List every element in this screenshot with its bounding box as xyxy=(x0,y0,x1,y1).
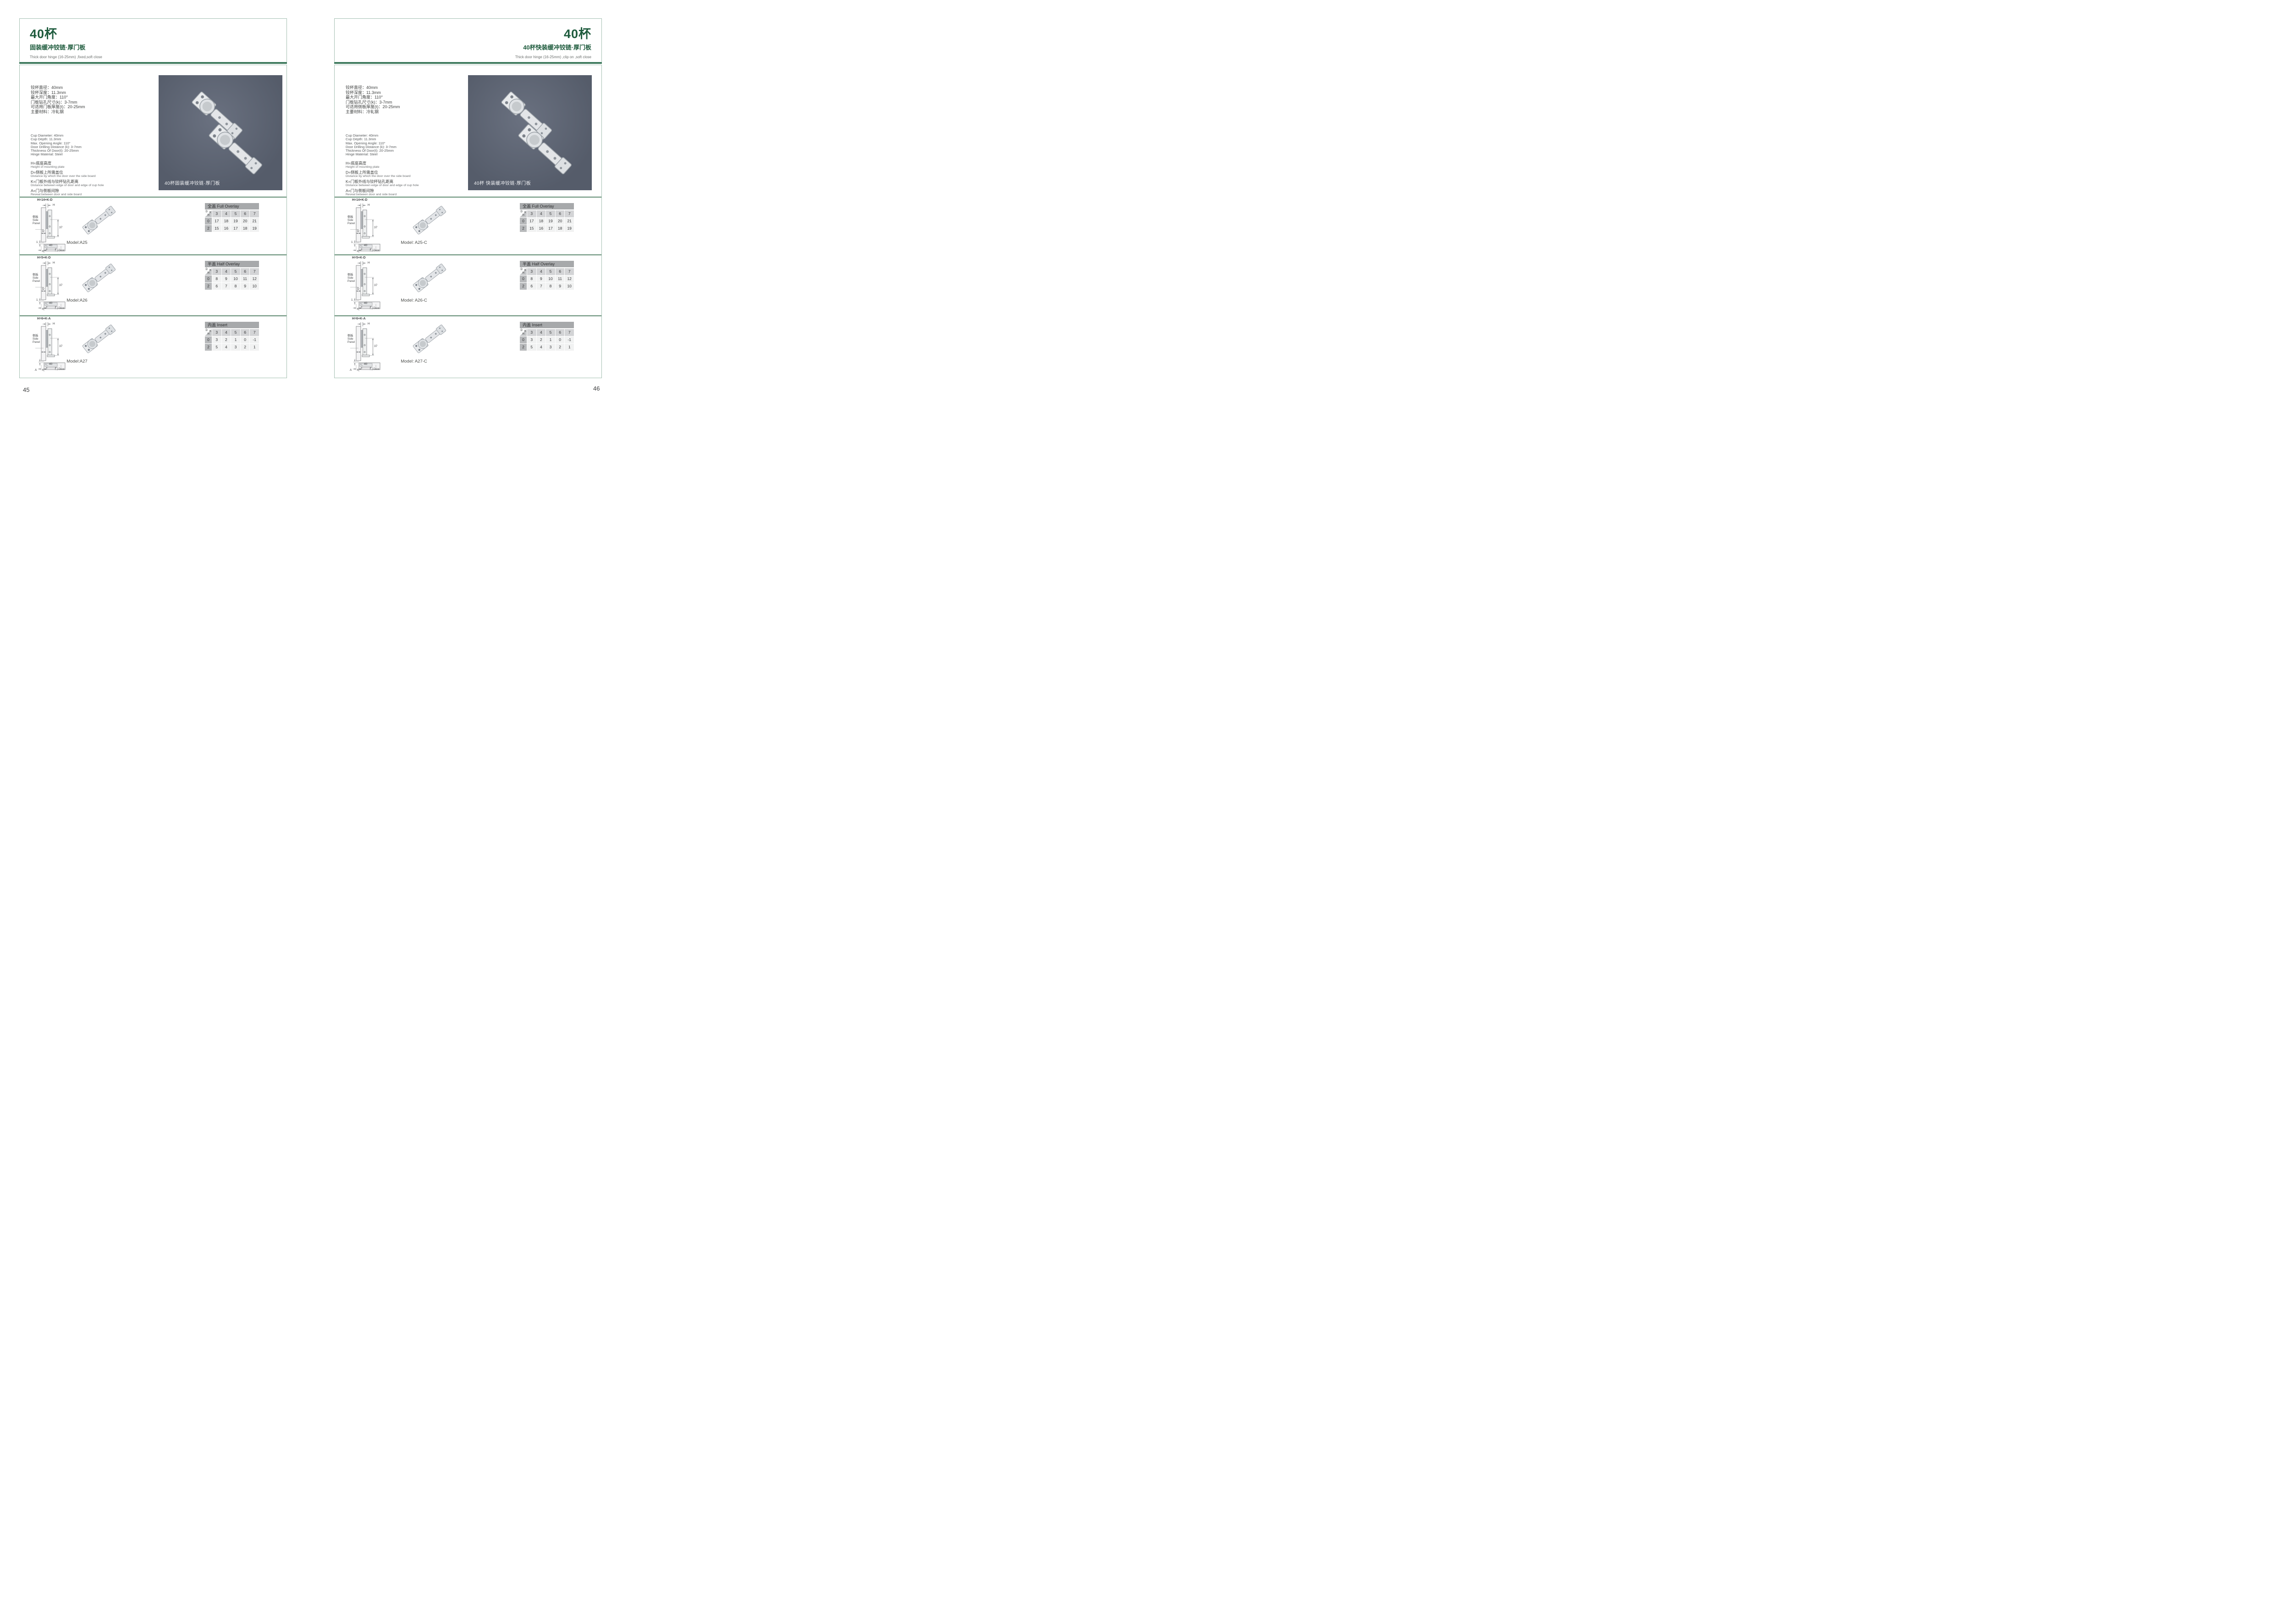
table-cell: 19 xyxy=(546,218,555,225)
photo-caption: 40杯 快装缓冲铰链·厚门板 xyxy=(474,179,531,186)
diagram-formula: H=5+K-D xyxy=(352,256,366,259)
side-panel-en: Panel xyxy=(33,341,40,344)
table-col-header: 4 xyxy=(537,329,546,336)
table-row-header: 0 xyxy=(205,218,212,225)
side-panel-en: Side xyxy=(347,219,355,222)
product-row: H=14+K-D H 侧板 Side Panel D 37 1 40 K 门 D… xyxy=(335,198,601,254)
page-body: 铰杯直径：40mm 铰杯深度：11.3mm 最大开门角度：110° 门板钻孔尺寸… xyxy=(19,65,287,378)
definition-cn: H=底座高度 xyxy=(346,161,419,165)
corner-label-d: D xyxy=(206,268,208,271)
diagram-label-k: K xyxy=(357,250,359,253)
side-panel-cn: 侧板 xyxy=(347,334,355,337)
table-cell: -1 xyxy=(565,336,574,343)
table-cell: 17 xyxy=(546,225,555,232)
table-cell: 0 xyxy=(241,336,250,343)
product-row: H=6+K-A H 侧板 Side Panel 37 40 K A 门 Door xyxy=(335,316,601,378)
corner-label-d: D xyxy=(206,329,208,332)
definition-cn: K=门板外线与铰杯钻孔距离 xyxy=(31,179,104,184)
table-row-header: 0 xyxy=(205,275,212,282)
page-header: 40杯 40杯快装缓冲铰链·厚门板 Thick door hinge (16-2… xyxy=(334,18,602,62)
table-corner-cell: D K H xyxy=(520,210,527,217)
model-label: Model:A26 xyxy=(47,298,107,303)
model-label: Model: A26-C xyxy=(384,298,444,303)
definition-en: Distance by which the door over the side… xyxy=(346,175,419,178)
spec-item: 主要材料：冷轧钢 xyxy=(31,110,85,115)
corner-label-d: D xyxy=(521,210,523,214)
diagram-label-a: A xyxy=(35,369,37,372)
definition-cn: H=底座高度 xyxy=(31,161,104,165)
table-cell: 1 xyxy=(565,344,574,351)
diagram-dim-37: 37 xyxy=(374,284,377,287)
diagram-label-d: D xyxy=(42,287,44,291)
table-cell: 2 xyxy=(241,344,250,351)
side-panel-cn: 侧板 xyxy=(33,215,40,219)
table-row-header: 2 xyxy=(520,283,527,290)
table-col-header: 4 xyxy=(222,210,231,217)
table-row-header: 0 xyxy=(520,218,527,225)
diagram-label-door: 门 Door xyxy=(370,367,380,371)
corner-label-k: K xyxy=(524,330,526,333)
table-title: 全盖 Full Overlay xyxy=(205,203,259,209)
table-cell: 9 xyxy=(222,275,231,282)
table-col-header: 7 xyxy=(250,329,259,336)
hinge-photo-art xyxy=(159,75,282,190)
table-col-header: 7 xyxy=(250,268,259,275)
table-cell: 8 xyxy=(231,283,240,290)
table-cell: 16 xyxy=(537,225,546,232)
table-grid: D K H 3 4 5 6 7 0 3 2 1 0 - xyxy=(520,329,574,351)
catalog-page: 40杯 40杯快装缓冲铰链·厚门板 Thick door hinge (16-2… xyxy=(334,18,602,378)
table-col-header: 6 xyxy=(241,329,250,336)
table-row-header: 0 xyxy=(520,275,527,282)
table-cell: 5 xyxy=(212,344,221,351)
diagram-dim-1: 1 xyxy=(351,241,353,244)
diagram-label-k: K xyxy=(42,308,44,311)
table-row-header: 2 xyxy=(520,225,527,232)
table-cell: 3 xyxy=(212,336,221,343)
diagram-label-k: K xyxy=(42,369,44,372)
table-cell: 4 xyxy=(537,344,546,351)
catalog-spread: 45 46 40杯 固装缓冲铰链·厚门板 Thick door hinge (1… xyxy=(0,0,623,406)
diagram-formula: H=6+K-A xyxy=(37,317,51,320)
diagram-label-k: K xyxy=(42,250,44,253)
table-col-header: 3 xyxy=(527,210,536,217)
diagram-formula: H=6+K-A xyxy=(352,317,366,320)
corner-label-h: H xyxy=(523,214,524,217)
diagram-formula: H=14+K-D xyxy=(352,198,367,202)
page-header: 40杯 固装缓冲铰链·厚门板 Thick door hinge (16-25mm… xyxy=(19,18,287,62)
side-panel-en: Panel xyxy=(33,222,40,225)
diagram-label-side-panel: 侧板 Side Panel xyxy=(33,334,40,344)
side-panel-en: Side xyxy=(33,276,40,280)
table-col-header: 3 xyxy=(527,329,536,336)
diagram-dim-1: 1 xyxy=(36,298,38,302)
definition-cn: A=门与侧板间隙 xyxy=(31,188,104,193)
definition-en: Height of mounting plate xyxy=(31,165,104,169)
table-grid: D K H 3 4 5 6 7 0 8 9 10 11 xyxy=(205,268,259,290)
definition-cn: D=侧板上所需盖位 xyxy=(31,170,104,175)
table-col-header: 6 xyxy=(241,268,250,275)
page-body: 铰杯直径：40mm 铰杯深度：11.3mm 最大开门角度：110° 门板钻孔尺寸… xyxy=(334,65,602,378)
corner-label-h: H xyxy=(523,333,524,336)
table-cell: 1 xyxy=(231,336,240,343)
hinge-product-image xyxy=(74,199,124,241)
hinge-product-image xyxy=(404,199,455,241)
diagram-label-k: K xyxy=(357,308,359,311)
spec-item: 主要材料：冷轧钢 xyxy=(346,110,400,115)
spec-list-cn: 铰杯直径：40mm 铰杯深度：11.3mm 最大开门角度：110° 门板钻孔尺寸… xyxy=(31,85,85,114)
diagram-label-h: H xyxy=(368,322,370,325)
table-title: 半盖 Half Overlay xyxy=(520,261,574,267)
diagram-label-door: 门 Door xyxy=(55,306,65,310)
table-grid: D K H 3 4 5 6 7 0 8 9 10 11 xyxy=(520,268,574,290)
page-number: 46 xyxy=(593,385,600,392)
overlay-table: 半盖 Half Overlay D K H 3 4 5 6 7 0 8 xyxy=(205,261,259,290)
corner-label-k: K xyxy=(209,330,211,333)
table-col-header: 3 xyxy=(212,329,221,336)
table-col-header: 3 xyxy=(212,210,221,217)
table-grid: D K H 3 4 5 6 7 0 17 18 19 20 xyxy=(205,210,259,232)
spec-item: 门板钻孔尺寸(k)：3-7mm xyxy=(31,100,85,105)
table-cell: 18 xyxy=(537,218,546,225)
table-cell: 2 xyxy=(537,336,546,343)
table-row-header: 0 xyxy=(205,336,212,343)
page-subtitle-en: Thick door hinge (16-25mm) ,fixed,soft c… xyxy=(30,55,276,59)
diagram-label-side-panel: 侧板 Side Panel xyxy=(33,215,40,226)
table-cell: 7 xyxy=(537,283,546,290)
table-cell: 4 xyxy=(222,344,231,351)
diagram-dim-37: 37 xyxy=(59,284,62,287)
table-cell: 19 xyxy=(250,225,259,232)
model-label: Model:A25 xyxy=(47,240,107,245)
table-cell: -1 xyxy=(250,336,259,343)
diagram-label-door: 门 Door xyxy=(55,248,65,252)
overlay-table: 内盖 Insert D K H 3 4 5 6 7 0 3 xyxy=(205,322,259,351)
table-cell: 3 xyxy=(231,344,240,351)
definition-en: Reveal between door and side board xyxy=(346,193,419,197)
side-panel-en: Side xyxy=(347,337,355,341)
corner-label-h: H xyxy=(523,272,524,275)
table-cell: 17 xyxy=(212,218,221,225)
corner-label-k: K xyxy=(524,211,526,215)
table-cell: 0 xyxy=(556,336,565,343)
table-cell: 19 xyxy=(565,225,574,232)
product-row: H=5+K-D H 侧板 Side Panel D 37 1 40 K 门 Do… xyxy=(20,255,286,315)
definition-en: Distance between edge of door and edge o… xyxy=(31,184,104,187)
diagram-dim-37: 37 xyxy=(374,345,377,348)
table-cell: 17 xyxy=(527,218,536,225)
diagram-label-side-panel: 侧板 Side Panel xyxy=(347,215,355,226)
diagram-label-side-panel: 侧板 Side Panel xyxy=(347,334,355,344)
catalog-page: 40杯 固装缓冲铰链·厚门板 Thick door hinge (16-25mm… xyxy=(19,18,287,378)
spec-item: 铰杯直径：40mm xyxy=(31,85,85,90)
corner-label-k: K xyxy=(524,269,526,272)
table-cell: 1 xyxy=(546,336,555,343)
table-cell: 7 xyxy=(222,283,231,290)
table-title: 半盖 Half Overlay xyxy=(205,261,259,267)
table-cell: 20 xyxy=(556,218,565,225)
table-row-header: 2 xyxy=(520,344,527,351)
diagram-label-h: H xyxy=(53,261,55,264)
diagram-label-d: D xyxy=(357,287,359,291)
table-col-header: 3 xyxy=(212,268,221,275)
corner-label-k: K xyxy=(209,211,211,215)
model-label: Model: A27-C xyxy=(384,359,444,364)
hinge-photo-art xyxy=(468,75,592,190)
table-cell: 8 xyxy=(546,283,555,290)
product-row: H=14+K-D H 侧板 Side Panel D 37 1 40 K 门 D… xyxy=(20,198,286,254)
overlay-table: 内盖 Insert D K H 3 4 5 6 7 0 3 xyxy=(520,322,574,351)
spec-item: 可适用侧板厚度(t)：20-25mm xyxy=(346,105,400,110)
hinge-product-image xyxy=(74,318,124,359)
spec-item: 最大开门角度：110° xyxy=(31,95,85,100)
diagram-dim-1: 1 xyxy=(36,241,38,244)
spec-item: Hinge Material: Steel xyxy=(31,153,82,156)
table-grid: D K H 3 4 5 6 7 0 17 18 19 20 xyxy=(520,210,574,232)
table-cell: 6 xyxy=(212,283,221,290)
spec-item: 铰杯深度：11.3mm xyxy=(31,90,85,95)
diagram-label-h: H xyxy=(368,204,370,207)
table-col-header: 7 xyxy=(565,210,574,217)
side-panel-en: Side xyxy=(347,276,355,280)
table-col-header: 5 xyxy=(546,268,555,275)
table-cell: 6 xyxy=(527,283,536,290)
table-cell: 5 xyxy=(527,344,536,351)
installation-diagram: H=5+K-D H 侧板 Side Panel D 37 1 40 K 门 Do… xyxy=(347,257,381,311)
diagram-label-door: 门 Door xyxy=(370,306,380,310)
diagram-label-d: D xyxy=(357,230,359,233)
diagram-label-k: K xyxy=(357,369,359,372)
table-col-header: 7 xyxy=(565,268,574,275)
product-row: H=5+K-D H 侧板 Side Panel D 37 1 40 K 门 Do… xyxy=(335,255,601,315)
table-cell: 21 xyxy=(565,218,574,225)
page-title: 40杯 xyxy=(345,28,591,40)
side-panel-cn: 侧板 xyxy=(347,215,355,219)
corner-label-h: H xyxy=(208,333,209,336)
dimension-definitions: H=底座高度 Height of mounting plate D=侧板上所需盖… xyxy=(31,160,104,196)
table-col-header: 4 xyxy=(537,210,546,217)
side-panel-en: Panel xyxy=(33,280,40,283)
table-corner-cell: D K H xyxy=(520,329,527,336)
table-cell: 18 xyxy=(241,225,250,232)
table-cell: 21 xyxy=(250,218,259,225)
overlay-table: 全盖 Full Overlay D K H 3 4 5 6 7 0 17 xyxy=(205,203,259,232)
overlay-table: 全盖 Full Overlay D K H 3 4 5 6 7 0 17 xyxy=(520,203,574,232)
definition-cn: A=门与侧板间隙 xyxy=(346,188,419,193)
corner-label-h: H xyxy=(208,214,209,217)
table-cell: 11 xyxy=(241,275,250,282)
header-divider xyxy=(334,62,602,64)
table-row-header: 2 xyxy=(205,344,212,351)
table-title: 全盖 Full Overlay xyxy=(520,203,574,209)
spec-item: 最大开门角度：110° xyxy=(346,95,400,100)
diagram-label-side-panel: 侧板 Side Panel xyxy=(33,273,40,283)
diagram-dim-37: 37 xyxy=(59,226,62,229)
table-cell: 1 xyxy=(250,344,259,351)
page-subtitle: 40杯快装缓冲铰链·厚门板 xyxy=(345,43,591,51)
table-cell: 19 xyxy=(231,218,240,225)
side-panel-en: Panel xyxy=(347,341,355,344)
corner-label-d: D xyxy=(206,210,208,214)
table-cell: 12 xyxy=(250,275,259,282)
diagram-label-door: 门 Door xyxy=(370,248,380,252)
table-cell: 15 xyxy=(212,225,221,232)
diagram-dim-40: 40 xyxy=(364,244,367,247)
page-subtitle-en: Thick door hinge (16-25mm) ,clip on ,sof… xyxy=(345,55,591,59)
table-cell: 20 xyxy=(241,218,250,225)
model-label: Model: A25-C xyxy=(384,240,444,245)
table-cell: 11 xyxy=(556,275,565,282)
hinge-product-image xyxy=(404,257,455,298)
side-panel-cn: 侧板 xyxy=(33,273,40,276)
table-cell: 10 xyxy=(250,283,259,290)
spec-item: Hinge Material: Steel xyxy=(346,153,397,156)
side-panel-en: Side xyxy=(33,219,40,222)
spec-item: 门板钻孔尺寸(k)：3-7mm xyxy=(346,100,400,105)
product-row: H=6+K-A H 侧板 Side Panel 37 40 K A 门 Door xyxy=(20,316,286,378)
dimension-definitions: H=底座高度 Height of mounting plate D=侧板上所需盖… xyxy=(346,160,419,196)
diagram-dim-37: 37 xyxy=(59,345,62,348)
table-title: 内盖 Insert xyxy=(520,322,574,328)
table-corner-cell: D K H xyxy=(205,210,212,217)
table-cell: 10 xyxy=(546,275,555,282)
model-label: Model:A27 xyxy=(47,359,107,364)
product-photo: 40杯固装缓冲铰链·厚门板 xyxy=(159,75,282,190)
table-col-header: 5 xyxy=(231,268,240,275)
definition-cn: K=门板外线与铰杯钻孔距离 xyxy=(346,179,419,184)
table-cell: 9 xyxy=(556,283,565,290)
installation-diagram: H=14+K-D H 侧板 Side Panel D 37 1 40 K 门 D… xyxy=(347,199,381,253)
table-col-header: 5 xyxy=(231,329,240,336)
definition-en: Height of mounting plate xyxy=(346,165,419,169)
corner-label-d: D xyxy=(521,329,523,332)
table-cell: 9 xyxy=(537,275,546,282)
diagram-dim-40: 40 xyxy=(364,363,367,366)
diagram-formula: H=14+K-D xyxy=(37,198,52,202)
side-panel-cn: 侧板 xyxy=(347,273,355,276)
diagram-dim-1: 1 xyxy=(351,298,353,302)
overlay-table: 半盖 Half Overlay D K H 3 4 5 6 7 0 8 xyxy=(520,261,574,290)
diagram-label-h: H xyxy=(53,204,55,207)
table-corner-cell: D K H xyxy=(520,268,527,275)
table-cell: 18 xyxy=(222,218,231,225)
table-col-header: 5 xyxy=(546,329,555,336)
table-cell: 15 xyxy=(527,225,536,232)
table-cell: 16 xyxy=(222,225,231,232)
header-divider xyxy=(19,62,287,64)
diagram-label-door: 门 Door xyxy=(55,367,65,371)
side-panel-en: Side xyxy=(33,337,40,341)
table-col-header: 4 xyxy=(537,268,546,275)
diagram-formula: H=5+K-D xyxy=(37,256,51,259)
table-cell: 3 xyxy=(527,336,536,343)
diagram-label-h: H xyxy=(368,261,370,264)
hinge-product-image xyxy=(74,257,124,298)
corner-label-k: K xyxy=(209,269,211,272)
table-cell: 12 xyxy=(565,275,574,282)
installation-diagram: H=6+K-A H 侧板 Side Panel 37 40 K A 门 Door xyxy=(347,318,381,372)
page-title: 40杯 xyxy=(30,28,276,40)
table-corner-cell: D K H xyxy=(205,329,212,336)
table-col-header: 4 xyxy=(222,329,231,336)
side-panel-cn: 侧板 xyxy=(33,334,40,337)
definition-en: Distance between edge of door and edge o… xyxy=(346,184,419,187)
definition-cn: D=侧板上所需盖位 xyxy=(346,170,419,175)
spec-list-en: Cup Diameter: 40mm Cup Depth: 11.3mm Max… xyxy=(346,134,397,157)
diagram-label-d: D xyxy=(42,230,44,233)
table-cell: 2 xyxy=(222,336,231,343)
spec-list-en: Cup Diameter: 40mm Cup Depth: 11.3mm Max… xyxy=(31,134,82,157)
table-cell: 8 xyxy=(527,275,536,282)
table-col-header: 7 xyxy=(565,329,574,336)
table-col-header: 5 xyxy=(546,210,555,217)
photo-caption: 40杯固装缓冲铰链·厚门板 xyxy=(165,179,220,186)
table-cell: 9 xyxy=(241,283,250,290)
table-col-header: 4 xyxy=(222,268,231,275)
table-cell: 2 xyxy=(556,344,565,351)
table-row-header: 2 xyxy=(205,225,212,232)
table-col-header: 7 xyxy=(250,210,259,217)
table-col-header: 3 xyxy=(527,268,536,275)
table-cell: 18 xyxy=(556,225,565,232)
diagram-label-a: A xyxy=(350,369,352,372)
table-row-header: 2 xyxy=(205,283,212,290)
hinge-product-image xyxy=(404,318,455,359)
table-col-header: 6 xyxy=(241,210,250,217)
table-col-header: 6 xyxy=(556,210,565,217)
table-row-header: 0 xyxy=(520,336,527,343)
table-col-header: 5 xyxy=(231,210,240,217)
table-title: 内盖 Insert xyxy=(205,322,259,328)
table-cell: 10 xyxy=(565,283,574,290)
spec-item: 铰杯深度：11.3mm xyxy=(346,90,400,95)
spec-item: 铰杯直径：40mm xyxy=(346,85,400,90)
diagram-dim-40: 40 xyxy=(364,302,367,305)
page-number: 45 xyxy=(23,386,29,393)
table-corner-cell: D K H xyxy=(205,268,212,275)
page-subtitle: 固装缓冲铰链·厚门板 xyxy=(30,43,276,51)
table-cell: 3 xyxy=(546,344,555,351)
spec-list-cn: 铰杯直径：40mm 铰杯深度：11.3mm 最大开门角度：110° 门板钻孔尺寸… xyxy=(346,85,400,114)
diagram-dim-37: 37 xyxy=(374,226,377,229)
side-panel-en: Panel xyxy=(347,222,355,225)
definition-en: Distance by which the door over the side… xyxy=(31,175,104,178)
corner-label-h: H xyxy=(208,272,209,275)
product-photo: 40杯 快装缓冲铰链·厚门板 xyxy=(468,75,592,190)
table-cell: 8 xyxy=(212,275,221,282)
table-cell: 10 xyxy=(231,275,240,282)
definition-en: Reveal between door and side board xyxy=(31,193,104,197)
diagram-label-h: H xyxy=(53,322,55,325)
table-col-header: 6 xyxy=(556,329,565,336)
table-col-header: 6 xyxy=(556,268,565,275)
table-grid: D K H 3 4 5 6 7 0 3 2 1 0 - xyxy=(205,329,259,351)
side-panel-en: Panel xyxy=(347,280,355,283)
spec-item: 可适用门板厚度(t)：20-25mm xyxy=(31,105,85,110)
corner-label-d: D xyxy=(521,268,523,271)
table-cell: 17 xyxy=(231,225,240,232)
diagram-label-side-panel: 侧板 Side Panel xyxy=(347,273,355,283)
